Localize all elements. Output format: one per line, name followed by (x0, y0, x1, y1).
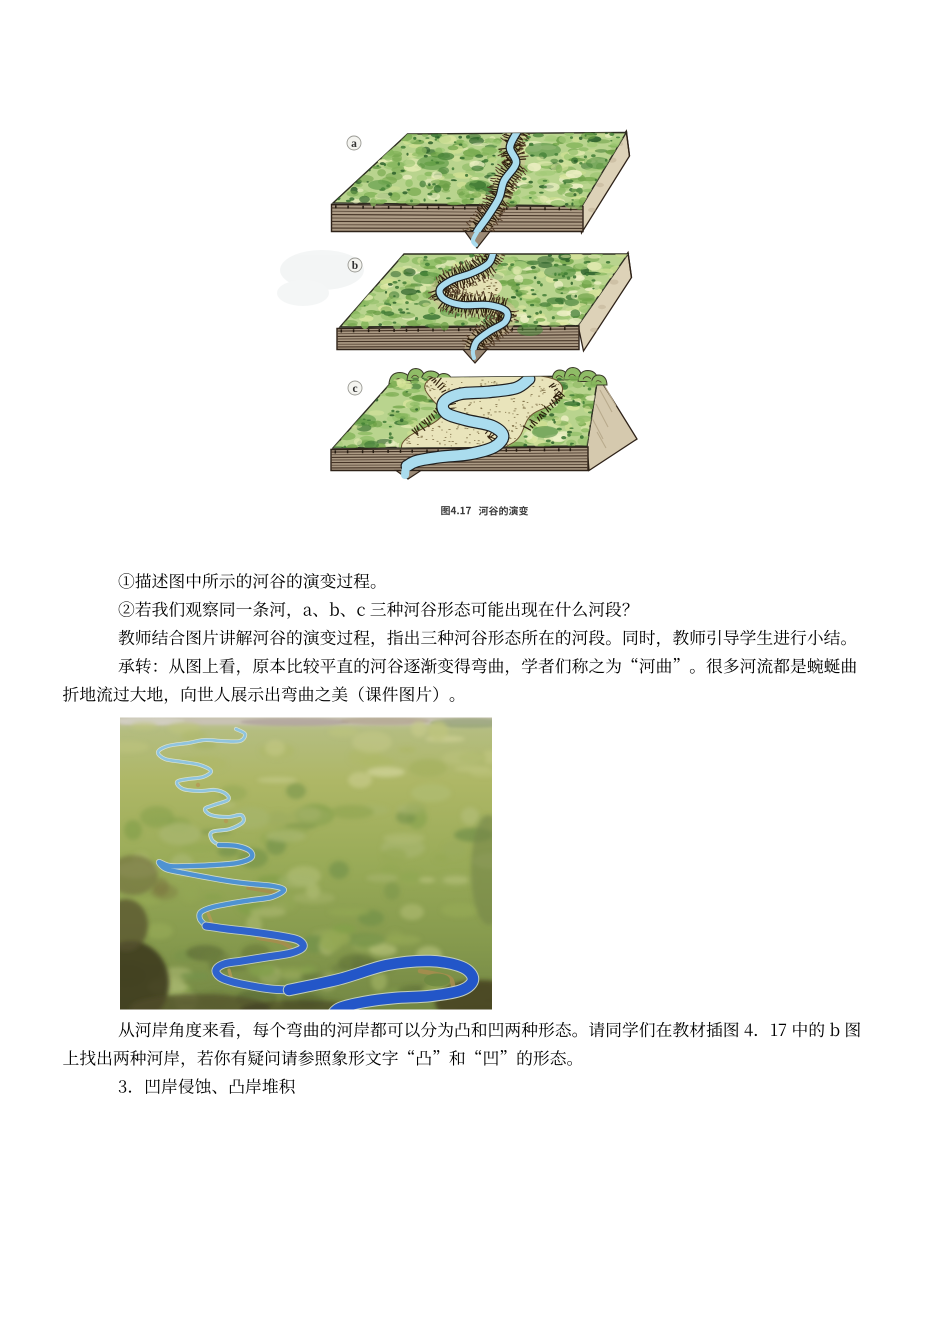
svg-text:c: c (352, 383, 357, 395)
svg-text:b: b (352, 260, 358, 272)
svg-text:a: a (351, 138, 357, 150)
